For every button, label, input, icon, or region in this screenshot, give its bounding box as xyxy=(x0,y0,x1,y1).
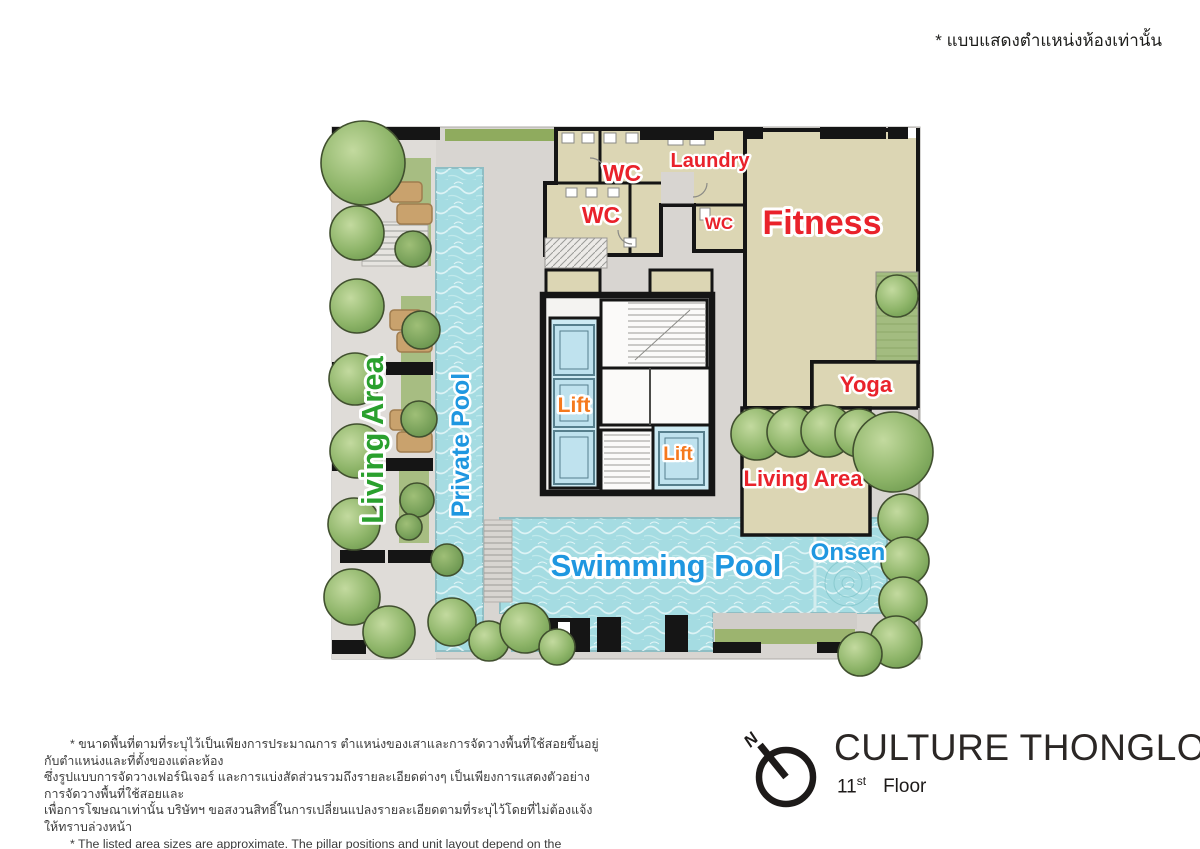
floor-plan-drawing: WC WC WC Laundry Fitness Yoga Living Are… xyxy=(0,0,1200,849)
wc-small-label: WC xyxy=(705,214,733,233)
floor-word: Floor xyxy=(883,776,926,797)
lift-main-label: Lift xyxy=(558,394,591,417)
stairs-lower xyxy=(604,433,650,488)
logo-block: N CULTURE THONGLOR 11stFloor xyxy=(744,729,1200,815)
living-area-left-label: Living Area xyxy=(355,355,390,523)
floor-plan-page: * แบบแสดงตำแหน่งห้องเท่านั้น xyxy=(0,0,1200,849)
floor-ordinal-suffix: st xyxy=(857,774,866,788)
logo-text: CULTURE THONGLOR 11stFloor xyxy=(834,729,1200,798)
yoga-label: Yoga xyxy=(840,372,893,397)
onsen-label: Onsen xyxy=(811,539,886,566)
wc-upper-label: WC xyxy=(603,160,641,186)
disclaimer-thai-line: เพื่อการโฆษณาเท่านั้น บริษัทฯ ขอสงวนสิทธ… xyxy=(44,802,604,835)
disclaimer-thai-line: * ขนาดพื้นที่ตามที่ระบุไว้เป็นเพียงการปร… xyxy=(44,736,604,769)
disclaimer-thai-line: ซึ่งรูปแบบการจัดวางเฟอร์นิเจอร์ และการแบ… xyxy=(44,769,604,802)
wc-lower-label: WC xyxy=(582,202,620,228)
living-area-right-label: Living Area xyxy=(744,466,864,491)
wall-gap xyxy=(908,128,916,138)
swimming-pool-label: Swimming Pool xyxy=(551,548,782,583)
floor-number: 11 xyxy=(837,776,857,797)
private-pool-label: Private Pool xyxy=(447,373,475,518)
floor-indicator: 11stFloor xyxy=(837,774,1200,798)
fitness-label: Fitness xyxy=(762,204,881,242)
laundry-label: Laundry xyxy=(671,150,751,172)
wc-laundry-block xyxy=(545,129,745,255)
lift-secondary-label: Lift xyxy=(663,444,693,465)
disclaimer-english-line: * The listed area sizes are approximate.… xyxy=(44,836,604,849)
south-walkway xyxy=(713,613,857,644)
project-name: CULTURE THONGLOR xyxy=(834,729,1200,768)
north-compass-icon: N xyxy=(744,729,822,815)
disclaimer-block: * ขนาดพื้นที่ตามที่ระบุไว้เป็นเพียงการปร… xyxy=(44,736,604,849)
